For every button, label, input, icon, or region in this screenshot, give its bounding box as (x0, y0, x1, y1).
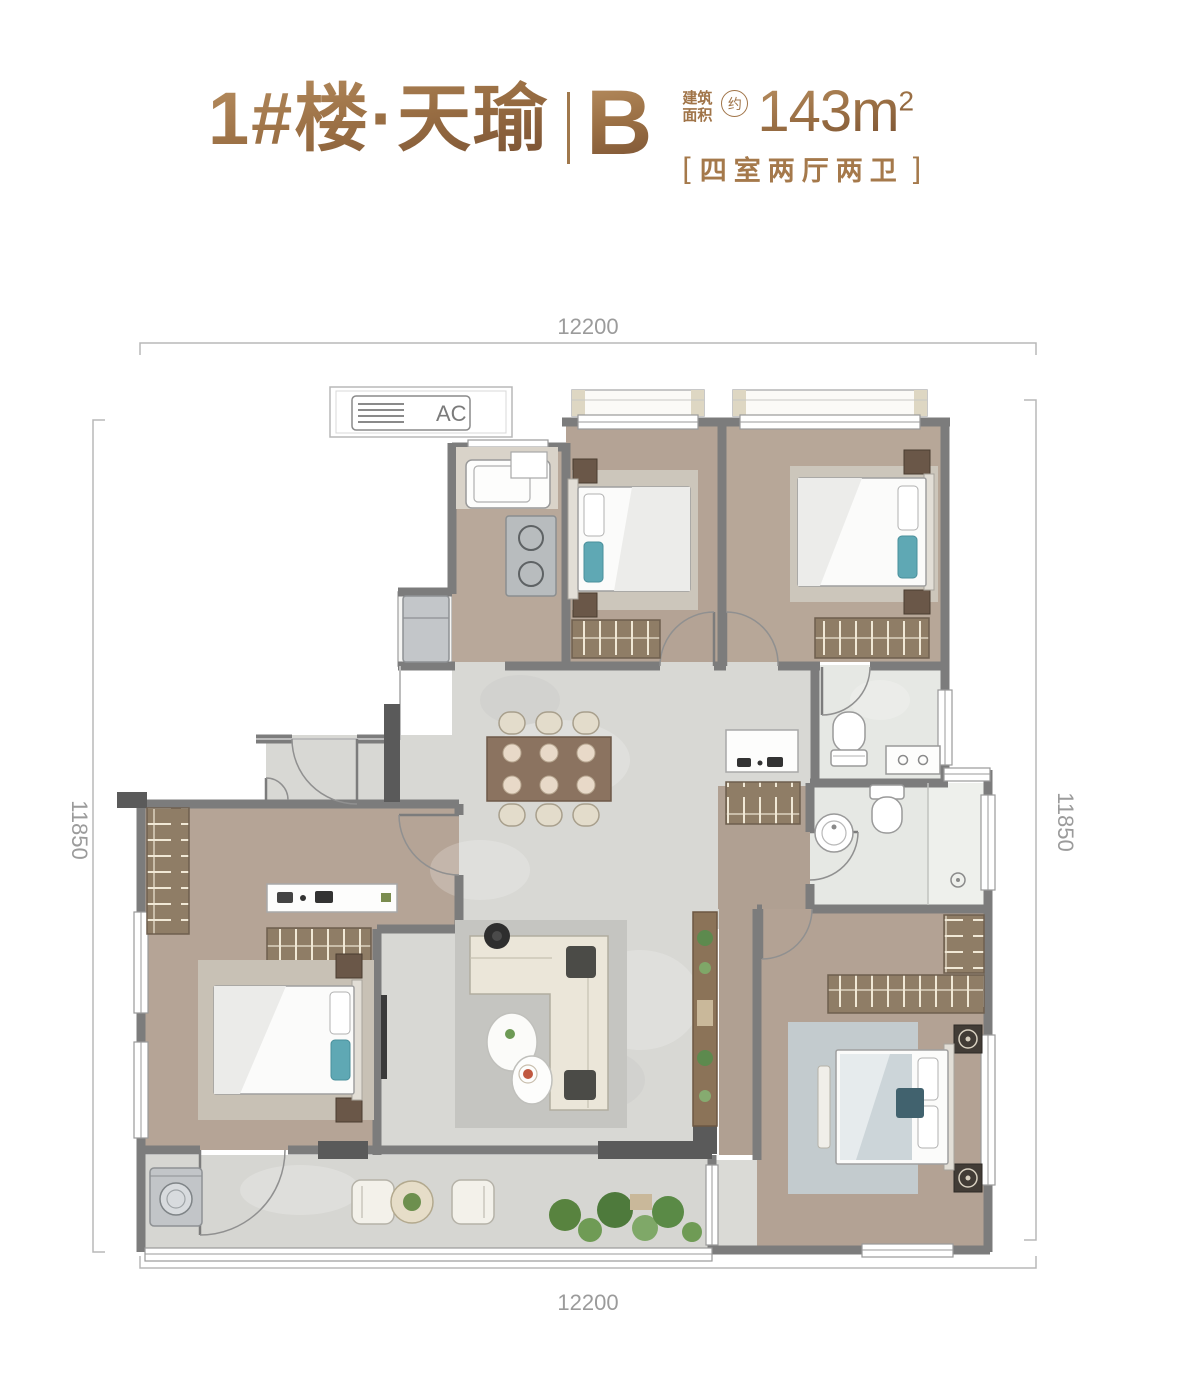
place-setting (577, 776, 595, 794)
desk-plant (381, 893, 391, 902)
device-icon (277, 892, 293, 903)
wardrobe (828, 975, 984, 1013)
dining-chair (536, 712, 562, 734)
coffee-table (512, 1056, 552, 1104)
entry-floor (266, 735, 455, 804)
area-label: 建筑 面积 (682, 90, 712, 125)
area-value: 143m2 (757, 84, 913, 139)
nightstand (336, 1098, 362, 1122)
dining-chair (536, 804, 562, 826)
place-setting (503, 744, 521, 762)
approx-badge: 约 (721, 90, 748, 117)
dining-chair (573, 804, 599, 826)
wardrobe (147, 808, 189, 934)
area-number: 143m (757, 79, 898, 144)
round-basin (815, 814, 853, 852)
dining-chair (573, 712, 599, 734)
exterior-outline (256, 666, 400, 739)
dining-chair (499, 712, 525, 734)
throw-blanket (896, 1088, 924, 1118)
pillow (584, 494, 604, 536)
place-setting (540, 776, 558, 794)
layout-text: 四室两厅两卫 (700, 149, 904, 188)
wardrobe (572, 620, 660, 658)
dining-set (487, 712, 611, 826)
dimension-line-left (93, 420, 105, 1252)
table-plant (505, 1029, 515, 1039)
nightstand (336, 954, 362, 978)
plan-header: 1#楼·天瑜 B 建筑 面积 约 143m2 [ 四室两厅两卫 ] (208, 78, 921, 188)
dimension-label-left: 11850 (67, 800, 92, 860)
ac-label: AC (436, 401, 467, 426)
device-icon (737, 758, 751, 767)
plant (697, 930, 713, 946)
cabinet-decor (697, 1000, 713, 1026)
toilet-icon (833, 712, 865, 752)
sofa-cushion (564, 1070, 596, 1100)
washbasin-counter (886, 746, 940, 774)
device-icon (767, 757, 783, 767)
headboard (568, 479, 578, 599)
title-divider (567, 92, 570, 164)
place-setting (503, 776, 521, 794)
nightstand (904, 590, 930, 614)
dimension-label-top: 12200 (557, 314, 618, 339)
teal-pillow (331, 1040, 350, 1080)
console-cabinet (726, 730, 798, 772)
fridge (403, 596, 449, 662)
layout-tag: [ 四室两厅两卫 ] (682, 149, 921, 188)
dimension-line-top (140, 343, 1036, 355)
device-icon (315, 891, 333, 903)
wall-tv (381, 995, 387, 1079)
balcony-chair (452, 1180, 494, 1224)
hallway-strip-floor (719, 909, 757, 1155)
wardrobe (815, 618, 929, 658)
plant (699, 1090, 711, 1102)
wardrobe (944, 915, 984, 973)
place-setting (577, 744, 595, 762)
dining-chair (499, 804, 525, 826)
bracket-right: ] (913, 154, 921, 184)
ac-platform: AC (330, 387, 512, 437)
plant (697, 1050, 713, 1066)
stove (506, 516, 556, 596)
pillow (898, 486, 918, 530)
teal-pillow (898, 536, 917, 578)
balcony-nook-floor (712, 1160, 757, 1250)
bracket-left: [ (682, 154, 690, 184)
area-sup: 2 (899, 86, 914, 117)
place-setting (540, 744, 558, 762)
range-hood (511, 452, 547, 478)
pillow (330, 992, 350, 1034)
table-plant (403, 1193, 421, 1211)
sofa-cushion (566, 946, 596, 978)
nightstand (904, 450, 930, 474)
unit-label: B (586, 80, 652, 167)
area-label-line2: 面积 (682, 107, 712, 124)
bench (818, 1066, 830, 1148)
dimension-label-right: 11850 (1053, 792, 1078, 852)
bay-window-bedroom3 (733, 390, 927, 416)
plant-pot (630, 1194, 652, 1210)
area-block: 建筑 面积 约 143m2 [ 四室两厅两卫 ] (682, 84, 921, 188)
dimension-line-right (1024, 400, 1036, 1240)
bay-window-bedroom2 (572, 390, 704, 416)
teal-pillow (584, 542, 603, 582)
floor-plan-canvas: 12200 12200 11850 11850 (0, 0, 1191, 1400)
page-title: 1#楼·天瑜 (208, 78, 549, 159)
fruit-bowl (523, 1069, 533, 1079)
hall-closet (726, 782, 800, 824)
dimension-label-bottom: 12200 (557, 1290, 618, 1315)
area-label-line1: 建筑 (682, 90, 712, 107)
balcony-chair (352, 1180, 394, 1224)
plant (699, 962, 711, 974)
